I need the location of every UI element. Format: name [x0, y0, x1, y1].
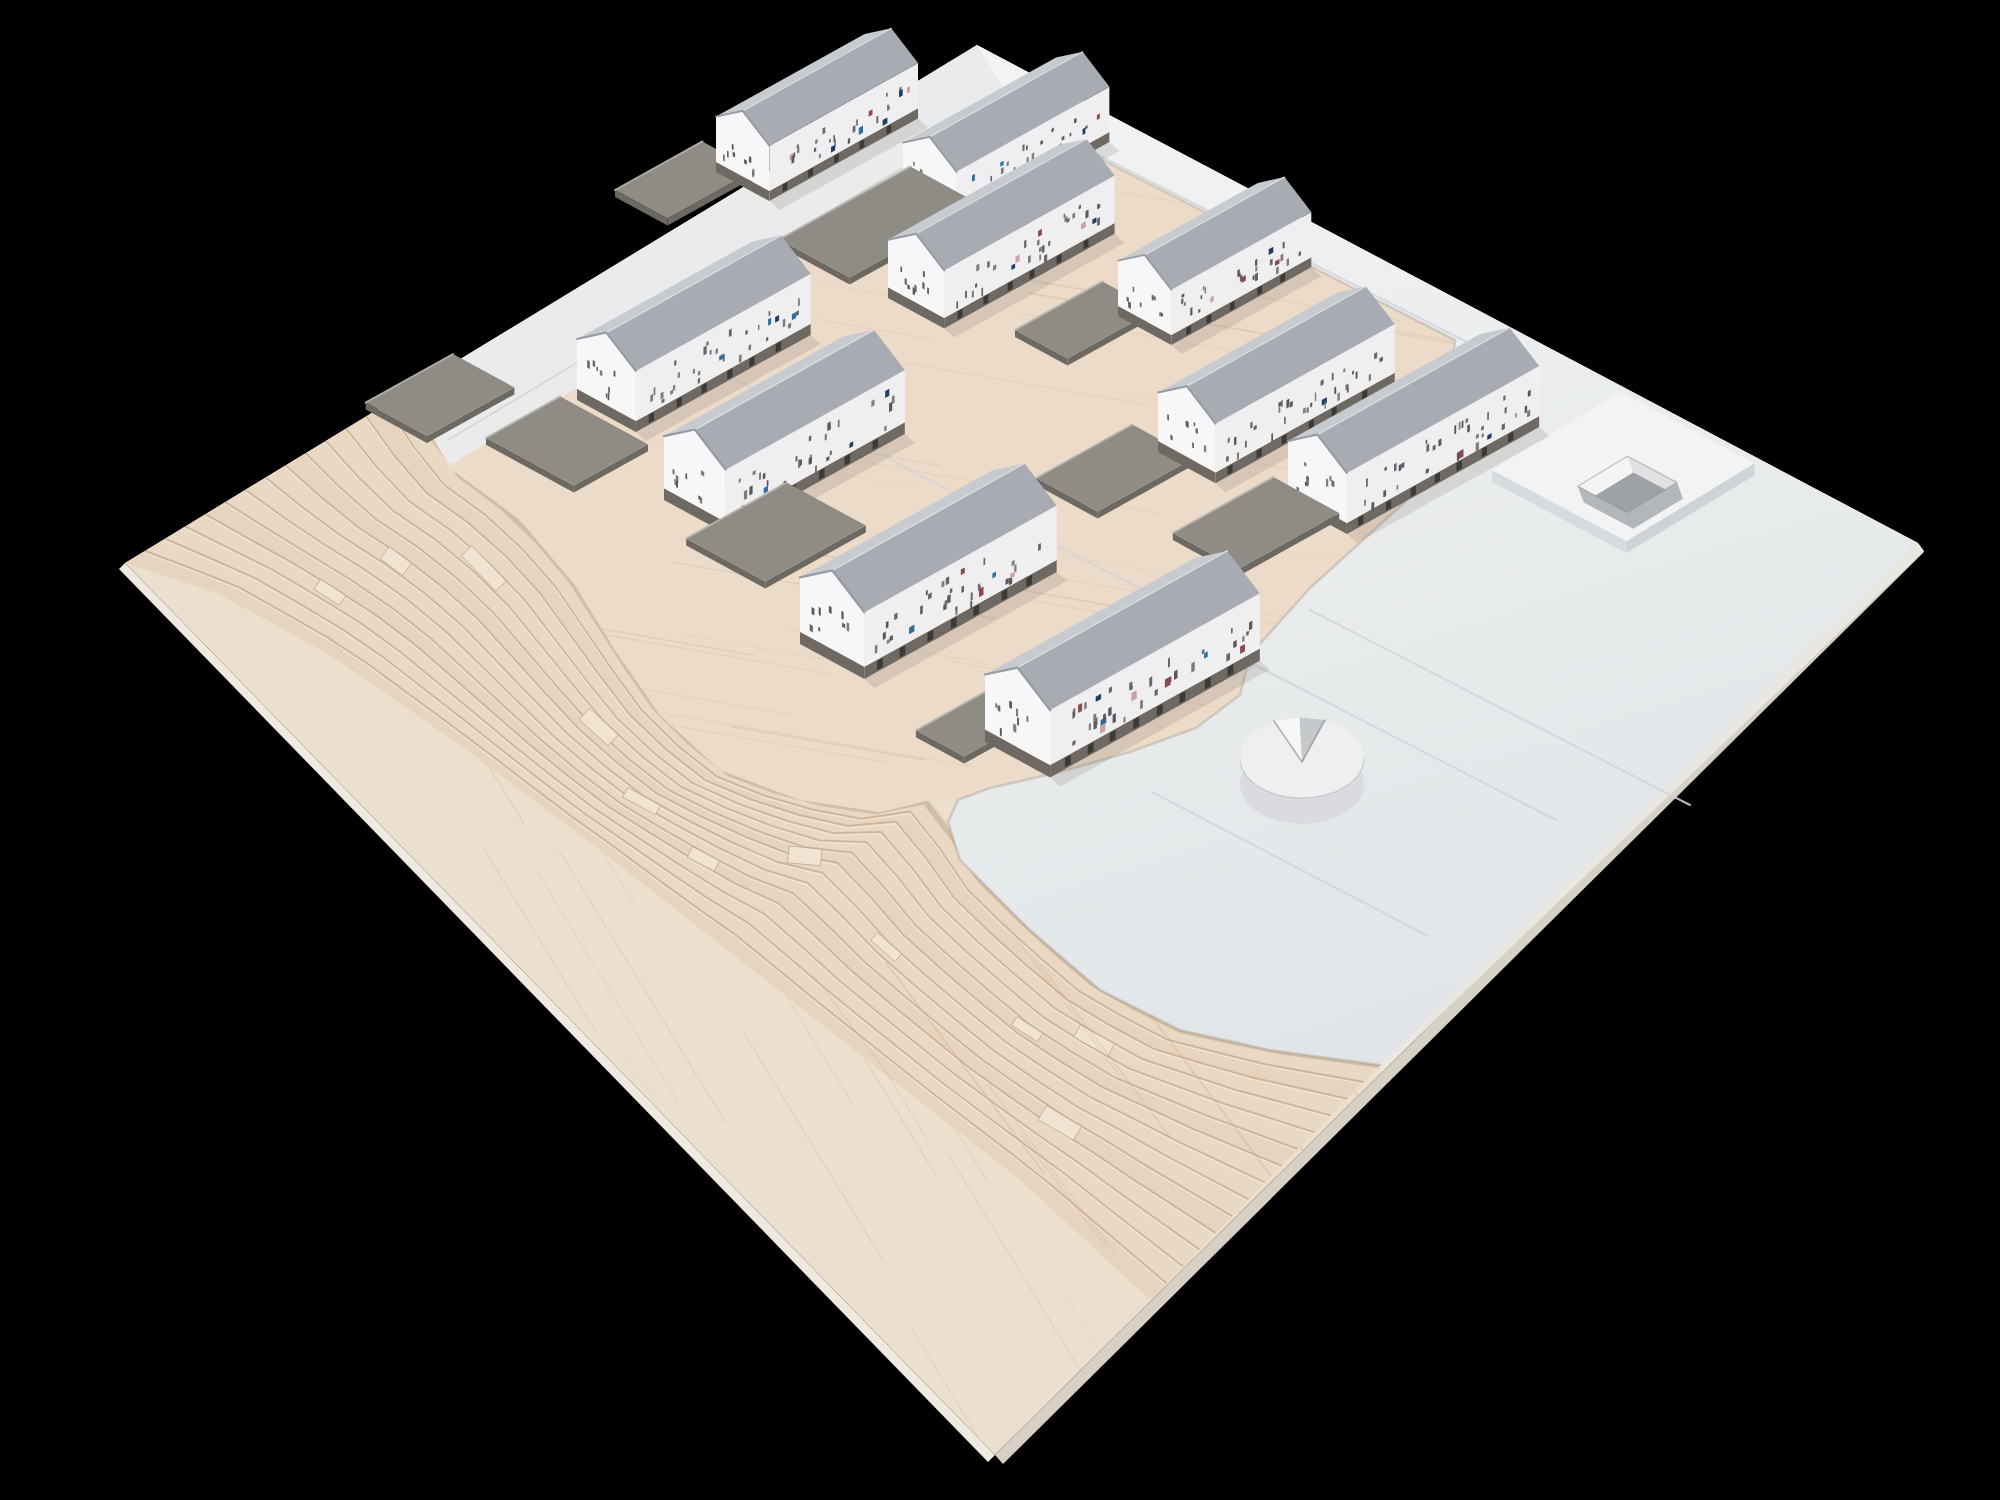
- facade-window: [1190, 307, 1192, 316]
- gable-window: [676, 481, 678, 489]
- facade-window: [1024, 240, 1026, 249]
- facade-window: [1371, 502, 1374, 511]
- model-photo-canvas: [0, 0, 2000, 1500]
- gable-window: [914, 285, 916, 293]
- facade-window: [1097, 203, 1099, 209]
- grain-streak: [1444, 997, 1533, 1143]
- facade-window: [1356, 371, 1358, 379]
- facade-window: [971, 592, 973, 601]
- facade-window: [1366, 478, 1368, 487]
- facade-window: [965, 291, 967, 299]
- facade-window: [1334, 387, 1336, 395]
- grain-streak: [1198, 1282, 1365, 1500]
- grain-streak: [334, 1433, 483, 1500]
- gable-window: [901, 266, 903, 272]
- facade-window: [1332, 372, 1334, 380]
- facade-window: [704, 346, 707, 356]
- facade-window: [1284, 416, 1286, 424]
- gable-window: [1192, 442, 1194, 448]
- gable-window: [1204, 445, 1206, 453]
- facade-window: [926, 590, 928, 596]
- facade-window: [1487, 412, 1489, 421]
- facade-window: [1255, 259, 1257, 267]
- grain-streak: [966, 1467, 1162, 1500]
- grain-streak: [1242, 138, 1453, 175]
- facade-window: [1505, 407, 1507, 414]
- facade-window: [1397, 485, 1399, 491]
- grain-streak: [532, 1111, 627, 1238]
- gable-window: [608, 387, 610, 394]
- facade-window: [792, 155, 795, 164]
- gable-window: [1167, 414, 1169, 421]
- facade-window: [1271, 433, 1273, 442]
- facade-window: [962, 585, 964, 593]
- facade-window: [1073, 711, 1075, 719]
- gable-window: [923, 271, 925, 278]
- grain-streak: [1317, 1342, 1461, 1500]
- facade-window: [1426, 439, 1428, 444]
- facade-window: [886, 92, 888, 97]
- gable-window: [922, 282, 924, 290]
- gable-window: [587, 360, 590, 369]
- facade-window: [892, 395, 895, 404]
- grain-streak: [528, 1417, 694, 1500]
- facade-window: [920, 605, 923, 615]
- grain-streak: [1352, 1336, 1511, 1500]
- facade-window: [1324, 402, 1326, 410]
- facade-window: [1462, 420, 1464, 428]
- facade-window: [783, 318, 786, 327]
- facade-window: [1205, 287, 1207, 294]
- facade-window: [856, 119, 858, 126]
- grain-streak: [159, 746, 281, 945]
- facade-window: [1026, 145, 1028, 150]
- grain-streak: [1218, 127, 1544, 183]
- gable-window: [1000, 728, 1002, 737]
- facade-window: [759, 472, 761, 480]
- facade-window: [984, 558, 986, 566]
- site-model-photo: [0, 0, 2000, 1500]
- gable-window: [1017, 717, 1019, 726]
- grain-streak: [322, 1075, 494, 1357]
- grain-streak: [1184, 1335, 1336, 1500]
- facade-window: [838, 419, 840, 428]
- gable-window: [841, 611, 843, 620]
- facade-window: [1467, 424, 1470, 433]
- facade-window: [1283, 241, 1285, 248]
- grain-streak: [738, 1475, 929, 1500]
- grain-streak: [215, 904, 398, 1203]
- grain-streak: [388, 1097, 567, 1389]
- facade-window: [1315, 392, 1316, 401]
- gable-window: [686, 473, 688, 480]
- grain-streak: [611, 1469, 684, 1500]
- grain-streak: [632, 1440, 815, 1500]
- facade-window: [1084, 702, 1087, 710]
- grain-streak: [720, 1368, 839, 1500]
- gable-window: [1140, 302, 1142, 307]
- facade-window: [815, 465, 817, 475]
- facade-window: [1113, 713, 1116, 724]
- facade-window: [889, 402, 892, 413]
- grain-streak: [1275, 1415, 1469, 1500]
- grain-streak: [181, 815, 279, 975]
- facade-window: [1168, 658, 1170, 668]
- gable-window: [812, 607, 815, 616]
- grain-streak: [1045, 1433, 1211, 1500]
- facade-window: [970, 601, 972, 611]
- grain-streak: [376, 1320, 483, 1494]
- grain-streak: [1275, 1265, 1347, 1383]
- grain-streak: [176, 893, 259, 1029]
- facade-window: [956, 301, 958, 309]
- grain-streak: [269, 1348, 436, 1500]
- facade-window: [1140, 700, 1143, 710]
- facade-window: [955, 608, 957, 615]
- facade-window: [1014, 564, 1016, 573]
- facade-window: [1245, 440, 1247, 448]
- grain-streak: [199, 869, 267, 979]
- gable-window: [1016, 708, 1018, 717]
- gable-window: [673, 469, 675, 475]
- facade-window: [1237, 452, 1239, 460]
- facade-window: [1255, 272, 1258, 281]
- facade-window: [798, 298, 800, 307]
- facade-window: [767, 480, 769, 487]
- facade-window: [1337, 392, 1339, 401]
- facade-window: [1364, 499, 1366, 506]
- facade-window: [991, 175, 992, 181]
- gable-window: [1133, 286, 1135, 292]
- grain-streak: [578, 1256, 692, 1443]
- grain-streak: [453, 1341, 547, 1495]
- gable-window: [614, 370, 616, 377]
- facade-window: [972, 290, 974, 298]
- facade-window: [654, 387, 656, 396]
- facade-window: [1023, 144, 1025, 151]
- facade-window: [1039, 254, 1041, 261]
- facade-window: [1231, 628, 1233, 634]
- facade-window: [981, 288, 983, 297]
- grain-streak: [429, 1131, 523, 1257]
- grain-streak: [764, 1343, 908, 1500]
- gable-window: [819, 607, 821, 616]
- cylinder-pavilion: [1240, 718, 1364, 825]
- gable-window: [723, 154, 725, 161]
- facade-window: [758, 324, 760, 330]
- facade-window: [1394, 463, 1397, 472]
- facade-window: [887, 104, 889, 111]
- grain-streak: [137, 916, 273, 1138]
- facade-window: [1044, 254, 1047, 264]
- grain-streak: [1216, 93, 1501, 143]
- facade-window: [1459, 422, 1461, 430]
- facade-window: [1287, 258, 1289, 267]
- grain-streak: [502, 1165, 674, 1395]
- facade-window: [1525, 405, 1527, 413]
- gable-window: [596, 367, 598, 372]
- gable-window: [905, 278, 907, 285]
- facade-window: [1286, 399, 1289, 409]
- gable-window: [732, 144, 734, 150]
- facade-window: [875, 645, 878, 654]
- gable-window: [608, 393, 610, 401]
- facade-window: [1096, 717, 1098, 726]
- gable-window: [847, 622, 850, 632]
- facade-window: [729, 329, 732, 338]
- facade-window: [798, 459, 800, 468]
- gable-window: [1326, 478, 1328, 487]
- grain-streak: [1340, 1430, 1512, 1500]
- facade-window: [1203, 286, 1204, 291]
- facade-window: [1124, 717, 1126, 724]
- gable-window: [752, 171, 753, 178]
- facade-window: [1515, 413, 1517, 418]
- terrace-step: [787, 846, 822, 866]
- facade-window: [876, 116, 878, 124]
- facade-window: [1457, 452, 1459, 462]
- gable-window: [927, 287, 929, 294]
- facade-window: [943, 604, 945, 611]
- facade-window: [1089, 723, 1091, 731]
- facade-window: [1369, 374, 1371, 382]
- facade-window: [1234, 437, 1236, 446]
- gable-window: [606, 393, 608, 399]
- grain-streak: [279, 841, 399, 1002]
- facade-window: [1279, 407, 1281, 414]
- facade-window: [1454, 425, 1456, 435]
- facade-window: [825, 433, 827, 441]
- grain-streak: [107, 943, 275, 1217]
- facade-window: [1149, 676, 1152, 687]
- facade-window: [749, 485, 752, 495]
- gable-window: [1026, 715, 1028, 722]
- facade-window: [744, 490, 747, 500]
- gable-window: [727, 151, 729, 158]
- facade-window: [1042, 245, 1044, 254]
- facade-window: [1347, 388, 1349, 394]
- gable-window: [1152, 294, 1154, 300]
